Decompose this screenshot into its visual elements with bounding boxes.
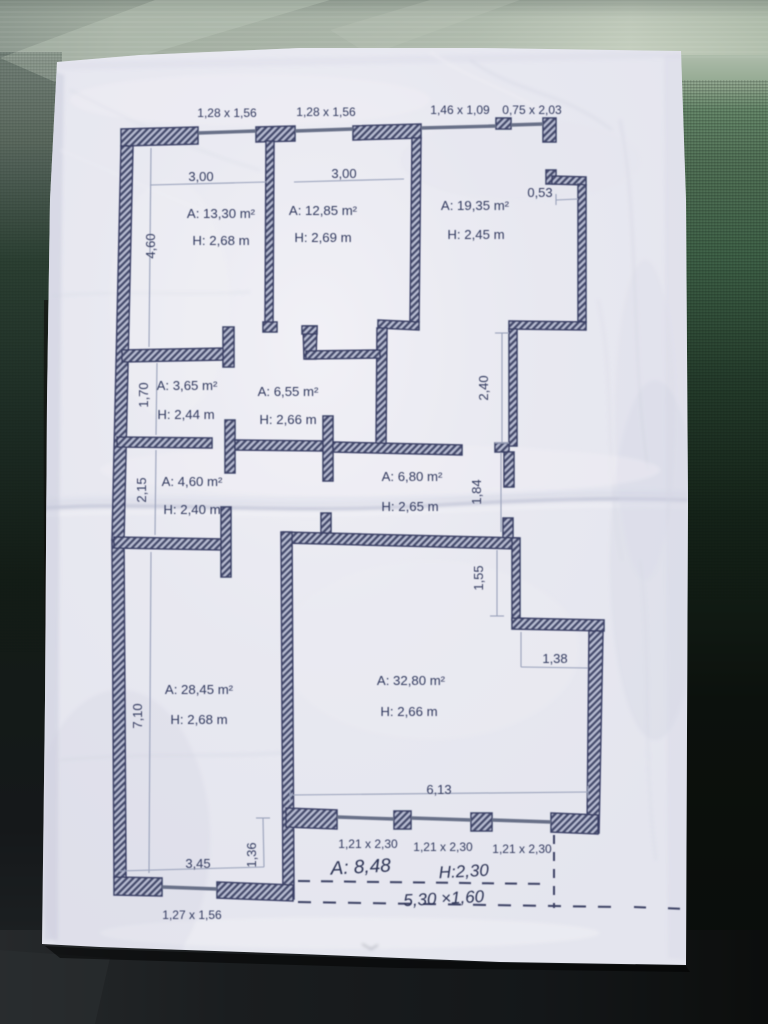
svg-text:A: 6,55 m²: A: 6,55 m² xyxy=(258,384,319,399)
svg-text:H: 2,45 m: H: 2,45 m xyxy=(447,227,504,242)
svg-text:1,21 x 2,30: 1,21 x 2,30 xyxy=(492,842,552,856)
svg-text:A: 28,45 m²: A: 28,45 m² xyxy=(165,682,234,697)
svg-text:0,53: 0,53 xyxy=(527,185,552,200)
svg-text:A: 19,35 m²: A: 19,35 m² xyxy=(441,198,510,213)
svg-text:2,15: 2,15 xyxy=(134,477,149,502)
svg-text:1,28 x 1,56: 1,28 x 1,56 xyxy=(197,106,257,120)
svg-text:A: 12,85 m²: A: 12,85 m² xyxy=(289,203,358,218)
svg-text:A: 3,65 m²: A: 3,65 m² xyxy=(157,378,218,393)
svg-text:H: 2,65 m: H: 2,65 m xyxy=(381,499,438,514)
svg-text:H: 2,68 m: H: 2,68 m xyxy=(170,712,227,727)
svg-text:H: 2,66 m: H: 2,66 m xyxy=(380,704,437,719)
svg-text:H:2,30: H:2,30 xyxy=(438,861,490,883)
svg-text:4,60: 4,60 xyxy=(143,233,158,258)
svg-text:H: 2,44 m: H: 2,44 m xyxy=(157,407,214,422)
svg-text:1,38: 1,38 xyxy=(542,651,567,666)
svg-text:A: 8,48: A: 8,48 xyxy=(329,855,392,879)
svg-text:H: 2,66 m: H: 2,66 m xyxy=(259,412,316,427)
svg-text:A: 13,30 m²: A: 13,30 m² xyxy=(187,206,256,221)
svg-text:3,00: 3,00 xyxy=(188,169,213,184)
svg-text:1,55: 1,55 xyxy=(471,565,486,590)
svg-text:1,84: 1,84 xyxy=(469,479,484,504)
svg-text:2,40: 2,40 xyxy=(476,375,491,400)
svg-text:7,10: 7,10 xyxy=(130,703,145,728)
svg-text:A: 4,60 m²: A: 4,60 m² xyxy=(162,474,223,489)
svg-text:3,45: 3,45 xyxy=(185,856,210,871)
svg-text:1,27 x 1,56: 1,27 x 1,56 xyxy=(162,908,222,922)
svg-text:H: 2,69 m: H: 2,69 m xyxy=(294,230,351,245)
svg-text:6,13: 6,13 xyxy=(426,782,451,797)
svg-text:H: 2,68 m: H: 2,68 m xyxy=(192,233,249,248)
svg-text:1,46 x 1,09: 1,46 x 1,09 xyxy=(430,103,490,117)
svg-text:1,70: 1,70 xyxy=(136,382,151,407)
svg-text:1,21 x 2,30: 1,21 x 2,30 xyxy=(413,840,473,854)
svg-text:1,28 x 1,56: 1,28 x 1,56 xyxy=(296,105,356,119)
svg-text:H: 2,40 m: H: 2,40 m xyxy=(163,502,220,517)
svg-text:A: 6,80 m²: A: 6,80 m² xyxy=(382,469,443,484)
svg-text:0,75 x 2,03: 0,75 x 2,03 xyxy=(502,103,562,117)
svg-text:3,00: 3,00 xyxy=(331,166,356,181)
svg-text:1,21 x 2,30: 1,21 x 2,30 xyxy=(338,837,398,851)
svg-text:1,36: 1,36 xyxy=(244,842,259,867)
svg-text:A: 32,80 m²: A: 32,80 m² xyxy=(377,673,446,688)
